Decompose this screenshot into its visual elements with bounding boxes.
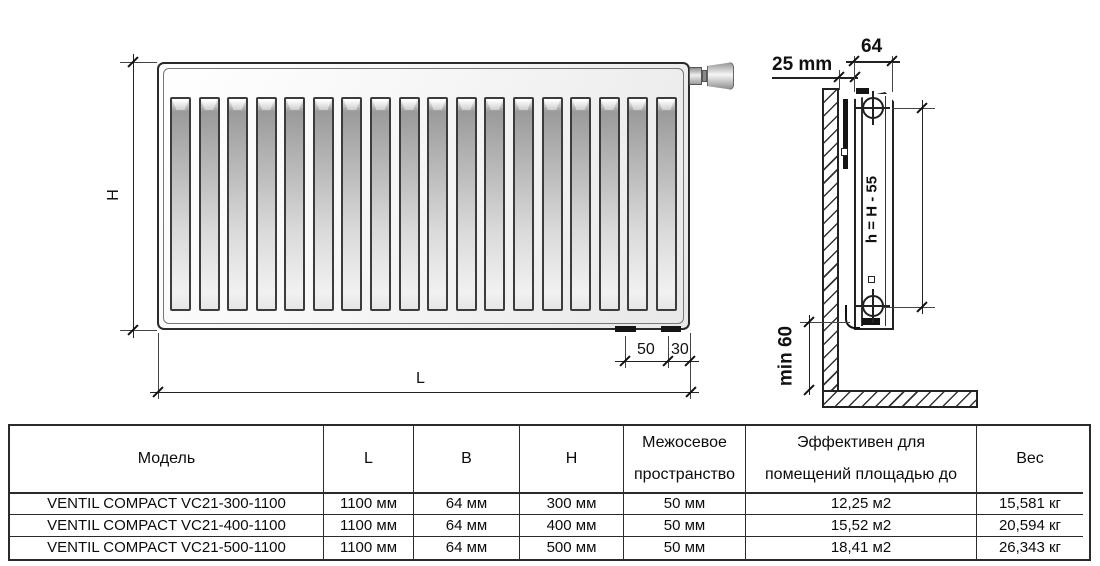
radiator-channel	[627, 97, 648, 311]
header-weight: Вес	[976, 426, 1083, 492]
radiator-channel	[170, 97, 191, 311]
radiator-channel	[256, 97, 277, 311]
radiator-channel	[370, 97, 391, 311]
radiator-spec-sheet: H L 50 30 25 mm 64	[0, 0, 1100, 566]
radiator-channel	[456, 97, 477, 311]
radiator-channel	[227, 97, 248, 311]
cell-model: VENTIL COMPACT VC21-400-1100	[10, 514, 323, 536]
dim-line-h	[133, 54, 134, 338]
floor-section	[822, 390, 978, 408]
cell-h: 300 мм	[519, 492, 623, 514]
header-b: B	[413, 426, 519, 492]
radiator-channel	[484, 97, 505, 311]
header-l: L	[323, 426, 413, 492]
wall-bracket	[843, 99, 848, 169]
crosshair	[872, 289, 874, 323]
radiator-channel	[341, 97, 362, 311]
header-spacing: Межосевое пространство	[623, 426, 745, 492]
bottom-valve-body	[862, 318, 880, 325]
cell-h: 400 мм	[519, 514, 623, 536]
dim-label-h-formula: h = H - 55	[864, 160, 881, 260]
dim-line-h-formula	[922, 100, 923, 314]
dim-label-l: L	[416, 370, 425, 388]
side-panel-line	[861, 96, 863, 326]
dim-extension	[668, 336, 669, 368]
cell-model: VENTIL COMPACT VC21-300-1100	[10, 492, 323, 514]
cell-b: 64 мм	[413, 492, 519, 514]
bottom-connection-stub	[661, 326, 681, 332]
cell-weight: 26,343 кг	[976, 536, 1083, 559]
side-hole	[868, 276, 875, 283]
radiator-channel	[199, 97, 220, 311]
bracket-notch	[841, 148, 848, 156]
radiator-channel	[427, 97, 448, 311]
cell-h: 500 мм	[519, 536, 623, 559]
thermostatic-valve-cap	[707, 62, 734, 90]
cell-b: 64 мм	[413, 514, 519, 536]
thermostatic-valve-nut	[689, 67, 702, 85]
dim-label-30: 30	[671, 341, 689, 359]
crosshair	[872, 91, 874, 125]
dim-line-l	[150, 392, 699, 393]
radiator-channel	[399, 97, 420, 311]
dim-line-min60	[809, 315, 810, 395]
thermostatic-valve-collar	[702, 70, 707, 82]
header-area: Эффективен для помещений площадью до	[745, 426, 976, 492]
radiator-channel	[313, 97, 334, 311]
dim-label-min60: min 60	[776, 309, 798, 404]
bottom-connection-stub	[615, 326, 636, 332]
radiator-channel	[513, 97, 534, 311]
radiator-channel	[284, 97, 305, 311]
header-model: Модель	[10, 426, 323, 492]
cell-model: VENTIL COMPACT VC21-500-1100	[10, 536, 323, 559]
cell-l: 1100 мм	[323, 514, 413, 536]
radiator-channel	[570, 97, 591, 311]
radiator-channel	[656, 97, 677, 311]
wall-section	[822, 88, 839, 392]
dim-line-25mm	[772, 77, 858, 79]
cell-spacing: 50 мм	[623, 536, 745, 559]
cell-spacing: 50 мм	[623, 492, 745, 514]
cell-l: 1100 мм	[323, 492, 413, 514]
side-panel-line	[885, 96, 887, 326]
radiator-channel	[599, 97, 620, 311]
bottom-bracket-hook	[845, 305, 860, 329]
radiator-channel	[542, 97, 563, 311]
top-clip	[856, 88, 869, 94]
dim-extension	[883, 307, 935, 308]
cell-weight: 15,581 кг	[976, 492, 1083, 514]
cell-area: 18,41 м2	[745, 536, 976, 559]
radiator-front-view	[157, 62, 690, 330]
radiator-channels	[159, 97, 688, 311]
dim-label-64: 64	[861, 36, 882, 58]
cell-b: 64 мм	[413, 536, 519, 559]
header-h: H	[519, 426, 623, 492]
cell-weight: 20,594 кг	[976, 514, 1083, 536]
cell-spacing: 50 мм	[623, 514, 745, 536]
spec-table: Модель L B H Межосевое пространство Эффе…	[8, 424, 1091, 561]
dim-extension	[120, 330, 157, 331]
cell-l: 1100 мм	[323, 536, 413, 559]
cell-area: 12,25 м2	[745, 492, 976, 514]
dim-label-50: 50	[637, 341, 655, 359]
dim-extension	[892, 108, 935, 109]
dim-label-h: H	[105, 189, 123, 201]
dim-label-25mm: 25 mm	[772, 54, 832, 76]
dim-extension	[625, 336, 626, 368]
dim-extension	[120, 62, 157, 63]
cell-area: 15,52 м2	[745, 514, 976, 536]
